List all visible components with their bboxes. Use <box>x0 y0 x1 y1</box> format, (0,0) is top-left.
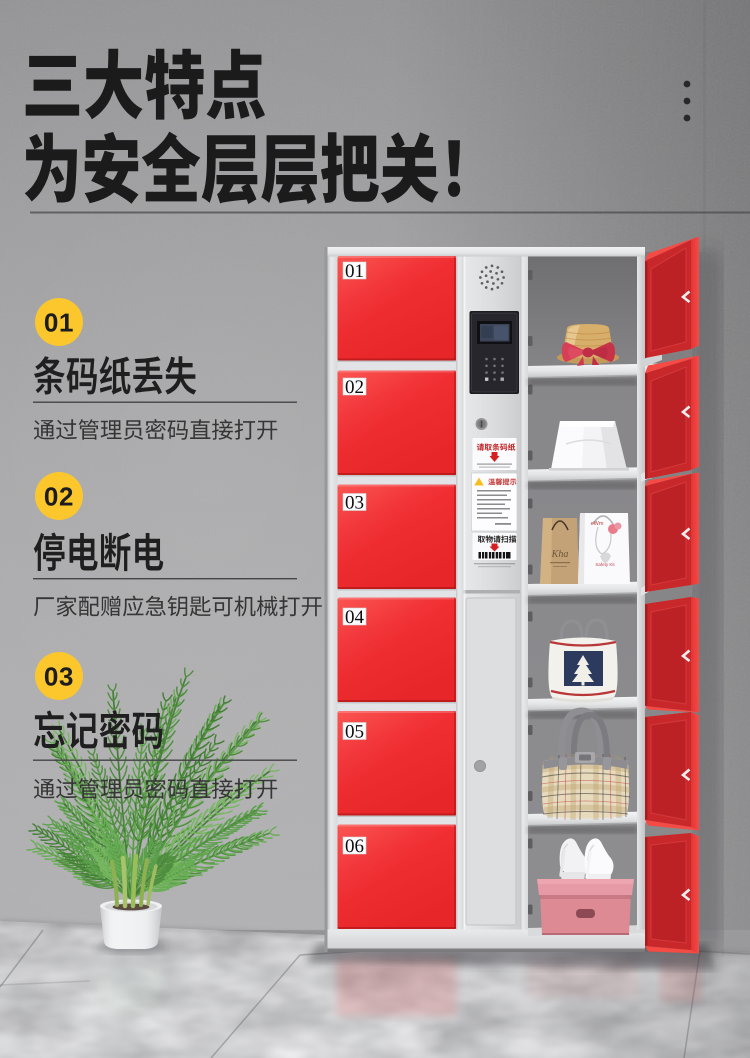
svg-text:Kha: Kha <box>551 549 569 560</box>
svg-text:eWm: eWm <box>591 521 604 527</box>
svg-text:Safety Kit: Safety Kit <box>595 562 615 567</box>
